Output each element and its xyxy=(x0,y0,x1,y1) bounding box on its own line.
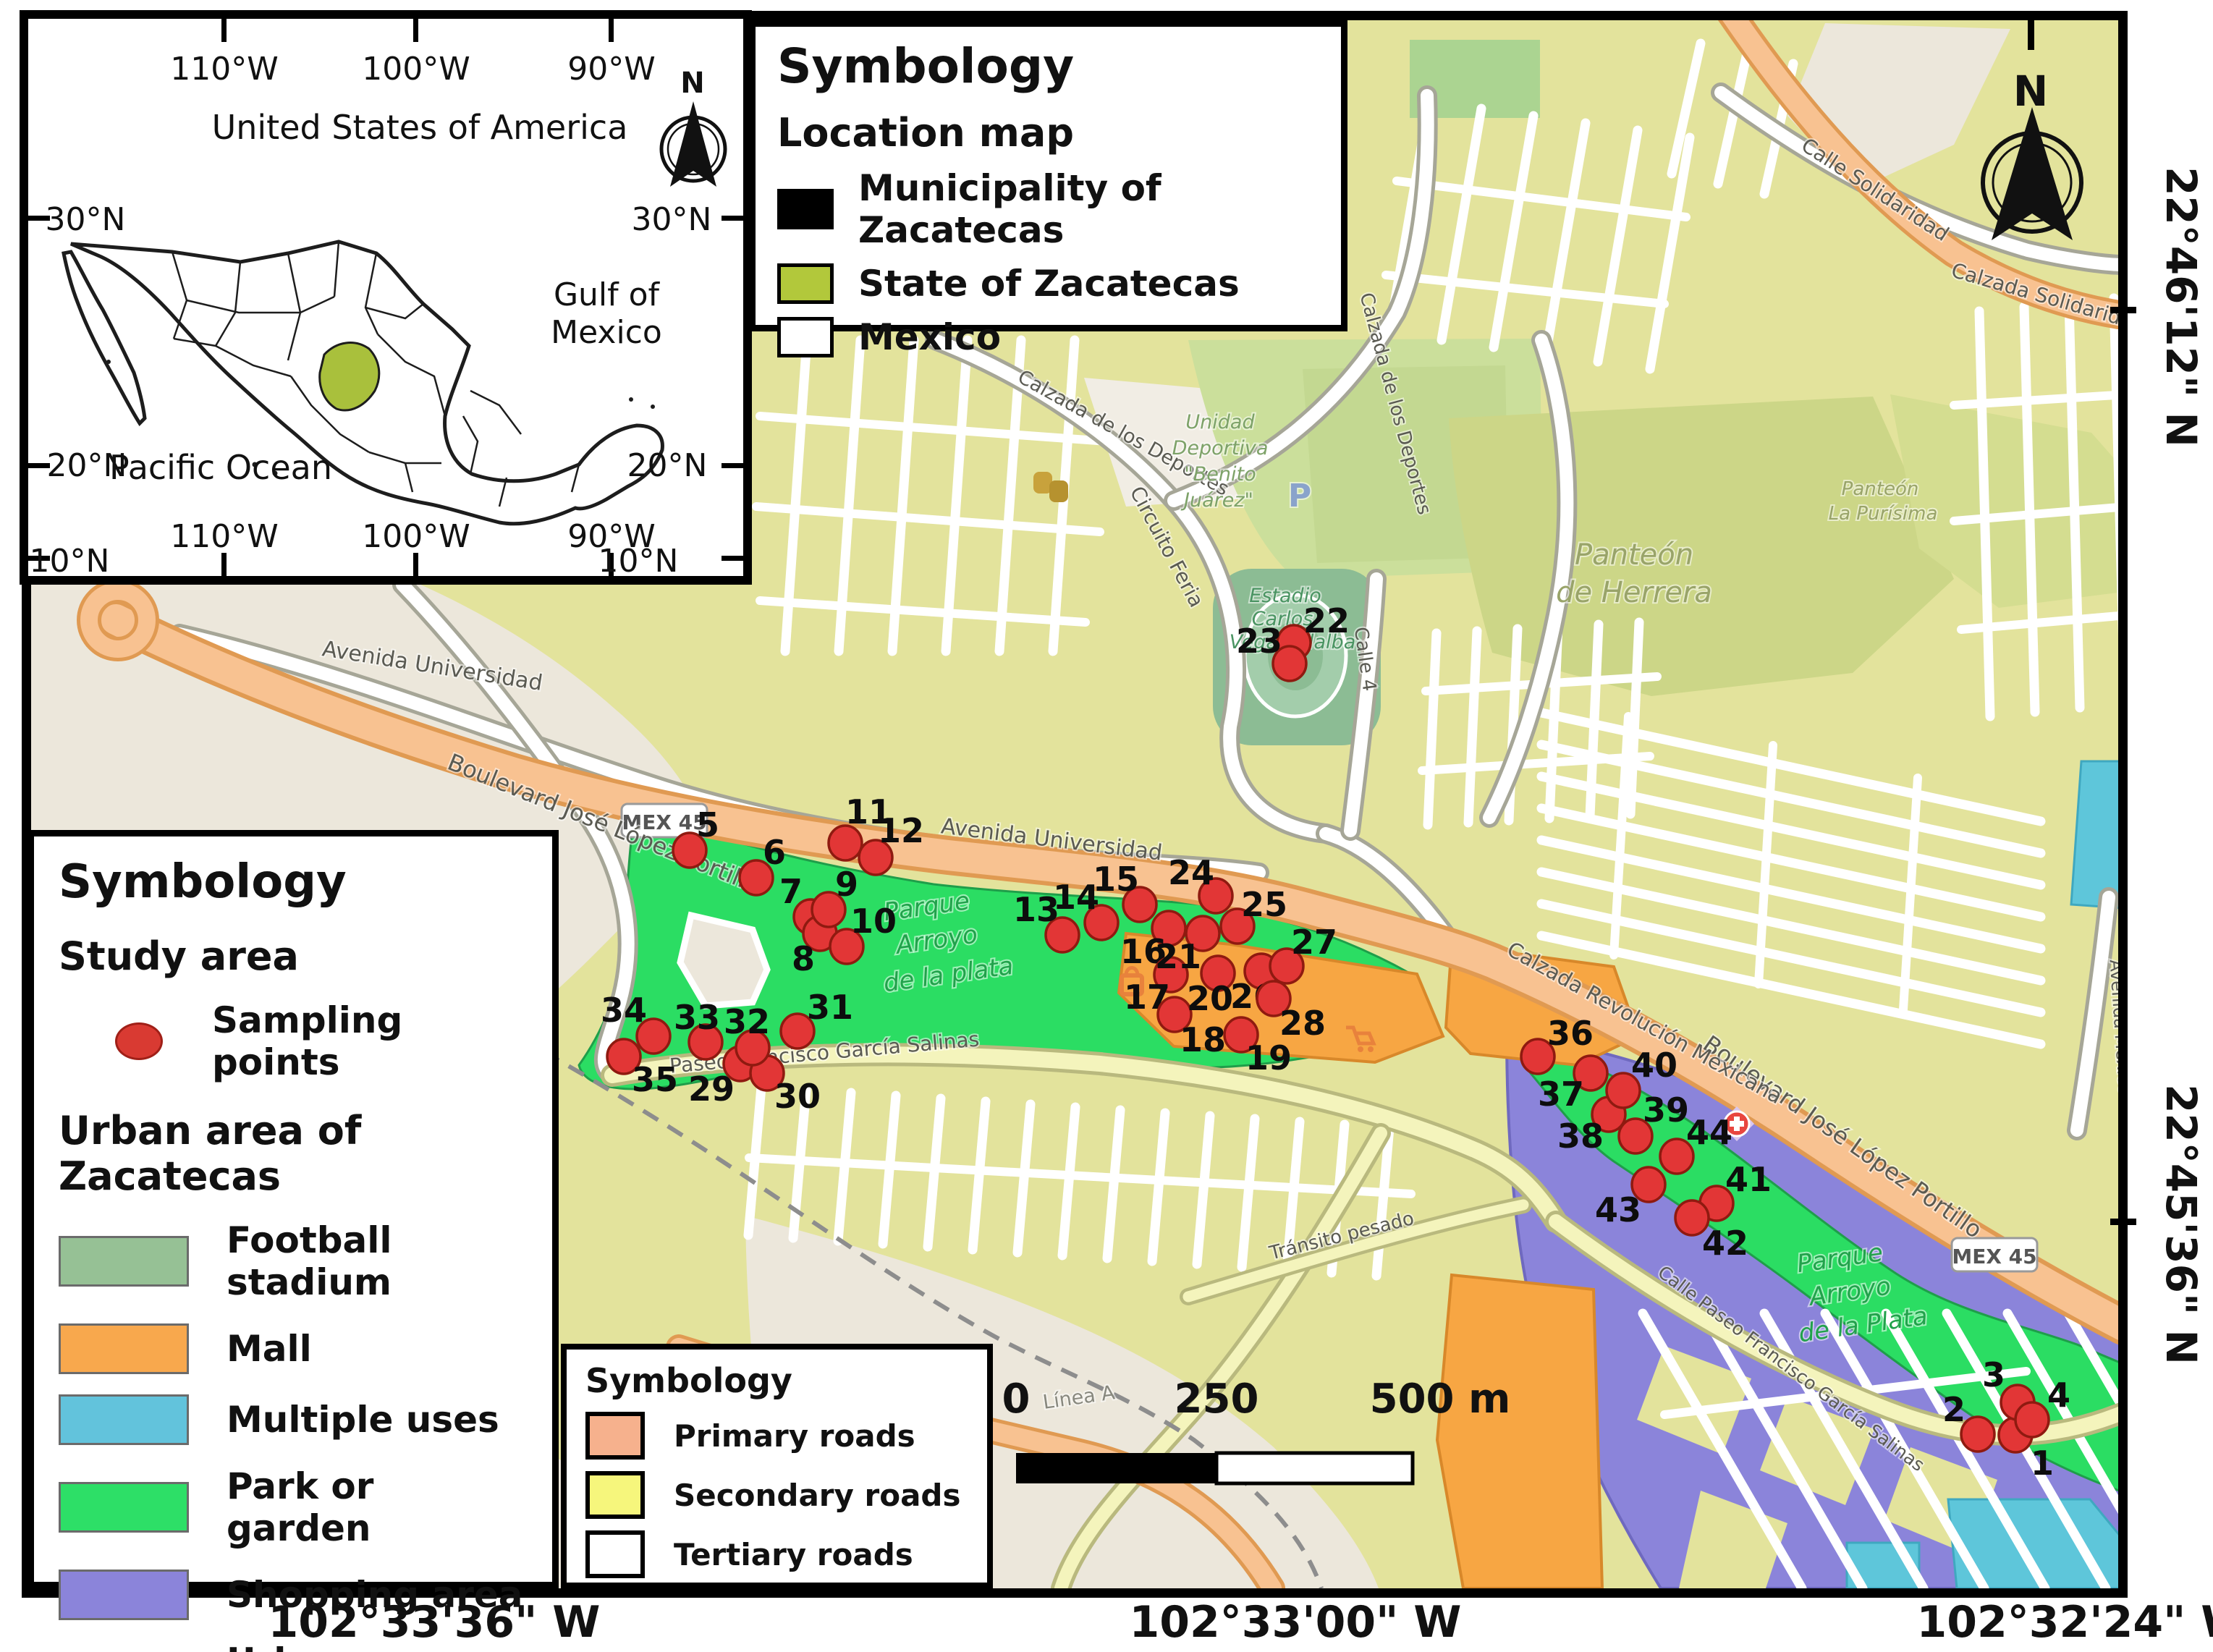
legend-item-sampling-points: Sampling points xyxy=(59,999,528,1083)
sampling-point-label-30: 30 xyxy=(774,1077,821,1116)
street-label: Panteón xyxy=(1575,538,1693,572)
inset-lat: 10°N xyxy=(598,543,679,580)
sampling-point-label-44: 44 xyxy=(1686,1113,1732,1152)
inset-lon: 100°W xyxy=(362,51,470,88)
inset-lat: 10°N xyxy=(30,543,110,580)
swatch-multiple-uses xyxy=(59,1394,189,1445)
multiple-uses-area xyxy=(2071,761,2123,908)
sampling-point-label-22: 22 xyxy=(1303,601,1350,640)
legend-roads: Symbology Primary roads Secondary roads … xyxy=(561,1344,993,1588)
lon-label: 102°32'24" W xyxy=(1917,1597,2213,1648)
sampling-point-label-31: 31 xyxy=(807,988,853,1027)
legend-item-label: Municipality of Zacatecas xyxy=(858,167,1319,251)
lon-label: 102°33'00" W xyxy=(1130,1597,1462,1648)
sampling-point-label-1: 1 xyxy=(2031,1444,2054,1483)
legend-item-label: Mexico xyxy=(858,316,1001,358)
sampling-point-label-23: 23 xyxy=(1236,622,1282,661)
grid-tick xyxy=(2028,11,2034,50)
legend-item-multiple-uses: Multiple uses xyxy=(59,1394,528,1445)
street-label: La Purísima xyxy=(1829,503,1938,525)
sampling-point-label-32: 32 xyxy=(724,1002,770,1041)
legend-item-park-or-garden: Park or garden xyxy=(59,1465,528,1549)
sampling-point-label-37: 37 xyxy=(1538,1075,1584,1114)
legend-study-area: Symbology Study area Sampling points Urb… xyxy=(27,830,559,1588)
sampling-point-label-6: 6 xyxy=(763,833,786,872)
legend-subtitle-urban-area: Urban area of Zacatecas xyxy=(59,1108,528,1199)
legend-item-label: Tertiary roads xyxy=(674,1537,913,1572)
sampling-point-label-40: 40 xyxy=(1631,1046,1677,1085)
legend-title: Symbology xyxy=(59,855,528,909)
inset-lon: 110°W xyxy=(170,518,279,555)
inset-location-map: 110°W 100°W 90°W United States of Americ… xyxy=(24,14,748,580)
sampling-point-label-29: 29 xyxy=(688,1069,735,1109)
inset-usa-label: United States of America xyxy=(212,108,628,147)
legend-item-mall: Mall xyxy=(59,1323,528,1374)
scale-500: 500 m xyxy=(1370,1376,1511,1423)
swatch-mall xyxy=(59,1323,189,1374)
sampling-point-label-19: 19 xyxy=(1245,1038,1292,1077)
sampling-point-label-12: 12 xyxy=(878,811,924,850)
street-label: Unidad xyxy=(1185,411,1255,433)
sampling-point-label-18: 18 xyxy=(1180,1020,1226,1059)
scale-bar-black xyxy=(1016,1453,1216,1483)
sampling-point-swatch xyxy=(115,1022,163,1060)
legend-title: Symbology xyxy=(777,38,1319,94)
scale-bar-white xyxy=(1216,1453,1413,1483)
sampling-point-label-2: 2 xyxy=(1942,1390,1966,1429)
sampling-point-label-4: 4 xyxy=(2047,1376,2070,1415)
inset-gulf-label: Gulf of xyxy=(554,276,661,313)
legend-item-tertiary-roads: Tertiary roads xyxy=(585,1530,968,1578)
grid-tick xyxy=(2110,1219,2136,1225)
sampling-point-label-5: 5 xyxy=(696,805,719,844)
legend-item-urban-settlement: Urban settlement xyxy=(59,1640,528,1652)
inset-lon: 110°W xyxy=(170,51,279,88)
legend-item-mexico: Mexico xyxy=(777,316,1319,358)
swatch-municipality xyxy=(777,189,834,229)
sampling-point-label-21: 21 xyxy=(1155,937,1201,976)
sampling-point-label-28: 28 xyxy=(1279,1004,1326,1043)
sampling-point-label-27: 27 xyxy=(1291,923,1337,962)
swatch-state xyxy=(777,263,834,304)
inset-lat: 20°N xyxy=(627,447,708,484)
street-label: Deportiva xyxy=(1172,437,1269,459)
legend-item-label: Multiple uses xyxy=(227,1399,499,1441)
lat-label: 22°46'12" N xyxy=(2157,166,2206,447)
grid-tick xyxy=(2110,307,2136,313)
street-label: Juárez" xyxy=(1180,489,1253,512)
legend-subtitle-study-area: Study area xyxy=(59,933,528,979)
legend-item-label: State of Zacatecas xyxy=(858,263,1240,305)
study-area-map-figure: MEX 45MEX 45 Avenida UniversidadAvenida … xyxy=(0,0,2213,1652)
inset-gulf-label: Mexico xyxy=(551,314,662,351)
sampling-point-label-8: 8 xyxy=(792,939,815,978)
sampling-point-label-35: 35 xyxy=(632,1060,678,1099)
inset-lon: 100°W xyxy=(362,518,470,555)
legend-item-label: Sampling points xyxy=(212,999,528,1083)
sampling-point-label-20: 20 xyxy=(1187,979,1233,1018)
legend-item-label: Mall xyxy=(227,1328,312,1370)
swatch-mexico xyxy=(777,317,834,357)
swatch-shopping xyxy=(59,1570,189,1620)
sampling-point-label-9: 9 xyxy=(835,865,858,904)
scale-0: 0 xyxy=(1002,1376,1031,1423)
sampling-point-label-15: 15 xyxy=(1093,860,1139,899)
swatch-primary-roads xyxy=(585,1412,645,1460)
legend-item-label: Urban settlement xyxy=(227,1640,528,1652)
legend-item-football-stadium: Football stadium xyxy=(59,1219,528,1303)
svg-text:MEX 45: MEX 45 xyxy=(1952,1245,2036,1268)
inset-lon: 90°W xyxy=(567,51,656,88)
lat-label: 22°45'36" N xyxy=(2157,1084,2206,1365)
sampling-point-label-7: 7 xyxy=(779,872,803,911)
legend-item-state: State of Zacatecas xyxy=(777,263,1319,305)
legend-item-label: Park or garden xyxy=(227,1465,528,1549)
swatch-tertiary-roads xyxy=(585,1530,645,1578)
legend-item-shopping-area: Shopping area xyxy=(59,1570,528,1620)
inset-lat: 30°N xyxy=(632,201,712,238)
inset-pacific-label: Pacific Ocean xyxy=(109,448,332,487)
inset-north-label: N xyxy=(680,67,704,100)
street-label: P xyxy=(1288,478,1311,514)
legend-item-secondary-roads: Secondary roads xyxy=(585,1471,968,1519)
legend-item-label: Football stadium xyxy=(227,1219,528,1303)
legend-item-primary-roads: Primary roads xyxy=(585,1412,968,1460)
sampling-point-label-34: 34 xyxy=(601,991,647,1030)
sampling-point-label-25: 25 xyxy=(1241,885,1287,924)
inset-lat: 30°N xyxy=(46,201,126,238)
sampling-point-4 xyxy=(2015,1402,2049,1437)
legend-title: Symbology xyxy=(585,1361,968,1400)
swatch-football-stadium xyxy=(59,1236,189,1287)
scale-250: 250 xyxy=(1175,1376,1259,1423)
sampling-point-label-41: 41 xyxy=(1725,1160,1772,1199)
sampling-point-label-38: 38 xyxy=(1557,1117,1604,1156)
legend-subtitle: Location map xyxy=(777,110,1319,156)
sampling-point-label-24: 24 xyxy=(1168,853,1214,892)
sampling-point-label-42: 42 xyxy=(1702,1224,1748,1263)
legend-item-municipality: Municipality of Zacatecas xyxy=(777,167,1319,251)
sampling-point-label-39: 39 xyxy=(1643,1090,1689,1130)
swatch-park xyxy=(59,1482,189,1533)
sampling-point-label-36: 36 xyxy=(1547,1014,1594,1053)
mall-area xyxy=(1437,1275,1602,1588)
sampling-point-label-10: 10 xyxy=(850,902,897,941)
street-label: Panteón xyxy=(1842,478,1919,500)
street-label: "Benito xyxy=(1184,463,1256,486)
sampling-point-label-3: 3 xyxy=(1982,1355,2005,1394)
street-label: de Herrera xyxy=(1556,576,1712,609)
sampling-point-label-33: 33 xyxy=(674,998,720,1037)
swatch-secondary-roads xyxy=(585,1471,645,1519)
sampling-point-2 xyxy=(1961,1417,1994,1452)
sampling-point-label-43: 43 xyxy=(1595,1190,1641,1229)
route-shield: MEX 45 xyxy=(1952,1238,2037,1271)
legend-location-map: Symbology Location map Municipality of Z… xyxy=(749,20,1347,331)
north-label: N xyxy=(2013,67,2049,116)
legend-item-label: Primary roads xyxy=(674,1418,915,1454)
legend-item-label: Shopping area xyxy=(227,1574,523,1616)
legend-item-label: Secondary roads xyxy=(674,1478,960,1513)
